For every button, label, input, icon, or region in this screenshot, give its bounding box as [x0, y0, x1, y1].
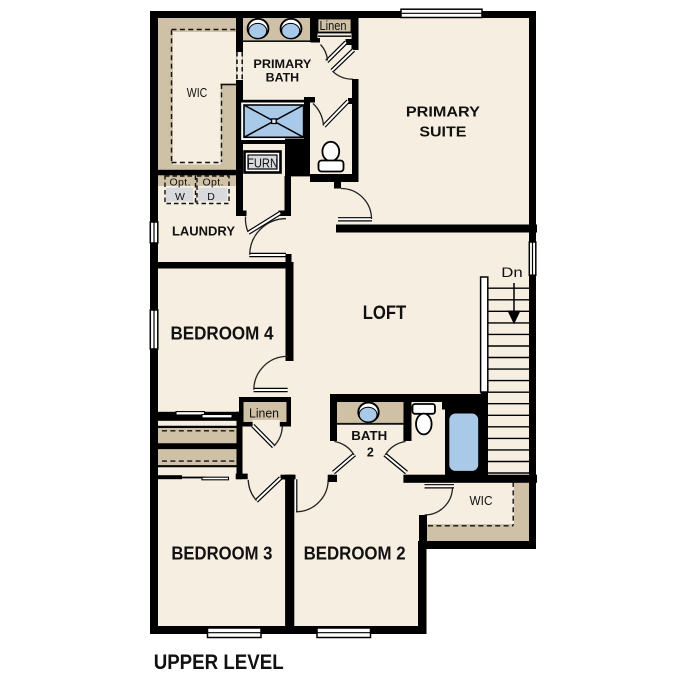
svg-text:PRIMARY: PRIMARY	[253, 59, 311, 71]
svg-text:FURN: FURN	[247, 157, 278, 171]
svg-text:LOFT: LOFT	[363, 303, 407, 324]
svg-text:WIC: WIC	[187, 85, 208, 100]
svg-text:BEDROOM 2: BEDROOM 2	[304, 544, 406, 564]
svg-text:BATH: BATH	[351, 429, 387, 443]
svg-text:Linen: Linen	[320, 19, 347, 33]
svg-text:Linen: Linen	[249, 406, 279, 420]
svg-text:Opt.: Opt.	[203, 177, 224, 189]
svg-text:BEDROOM 3: BEDROOM 3	[171, 544, 272, 564]
svg-text:PRIMARY: PRIMARY	[406, 104, 480, 120]
svg-text:LAUNDRY: LAUNDRY	[172, 225, 236, 239]
svg-text:D: D	[207, 191, 215, 203]
svg-text:2: 2	[367, 445, 374, 459]
svg-text:BEDROOM 4: BEDROOM 4	[171, 324, 274, 344]
svg-text:W: W	[175, 191, 185, 203]
svg-text:BATH: BATH	[266, 73, 300, 85]
svg-text:Dn: Dn	[501, 264, 523, 280]
svg-text:WIC: WIC	[470, 494, 493, 508]
svg-text:UPPER LEVEL: UPPER LEVEL	[154, 651, 284, 674]
svg-text:SUITE: SUITE	[419, 124, 466, 140]
svg-text:Opt.: Opt.	[170, 177, 191, 189]
